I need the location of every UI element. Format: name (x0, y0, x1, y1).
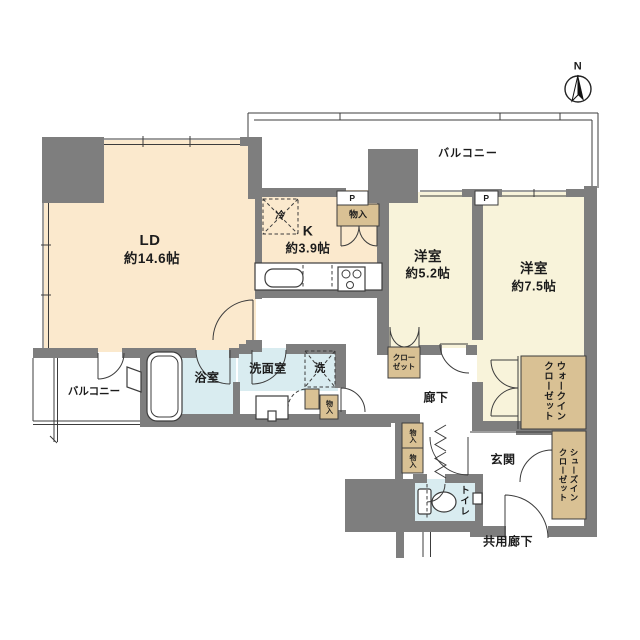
common-hallway-label: 共用廊下 (483, 535, 533, 550)
toilet-label: トイレ (457, 485, 469, 517)
walk-in-closet-label: ウォークイン クローゼット (541, 361, 566, 421)
entrance-storage-bifold-doors (435, 425, 446, 478)
paper-holder (473, 493, 482, 504)
north-label: N (574, 60, 582, 73)
bath-label: 浴室 (194, 371, 219, 386)
pipe-space-1-label: P (349, 193, 355, 203)
kitchen-name-label: K (303, 222, 314, 239)
bathtub (147, 352, 182, 421)
closet-52-label: クロー ゼット (393, 353, 416, 371)
washroom-label: 洗面室 (249, 362, 287, 377)
washer-label: 洗 (314, 362, 326, 375)
entrance-door (505, 495, 548, 538)
vanity-sink (256, 396, 288, 421)
hall-storage-label: 物入 (324, 400, 333, 414)
pipe-space-2-label: P (483, 193, 489, 203)
balcony-top-label: バルコニー (438, 147, 498, 160)
entrance-storage-a-label: 物入 (408, 429, 417, 443)
bedroom-52-name-label: 洋室 (414, 249, 442, 265)
floor-plan-drawing (0, 0, 640, 640)
ld-balcony-door (98, 353, 124, 379)
kitchen-storage-label: 物入 (349, 210, 367, 221)
kitchen-counter (255, 263, 382, 291)
hall-entrance-door (430, 437, 468, 475)
hallway-label: 廊下 (423, 391, 448, 406)
kitchen-size-label: 約3.9帖 (286, 241, 331, 256)
fridge-label: 冷 (275, 210, 286, 222)
entrance-label: 玄関 (490, 453, 515, 468)
north-compass (565, 75, 591, 102)
balcony-left-label: バルコニー (68, 386, 120, 399)
hall-storage-small-box (305, 389, 319, 409)
balcony-door-leaf (127, 367, 141, 392)
ld-name-label: LD (140, 232, 161, 250)
shoes-in-closet-label: シューズイン クローゼット (557, 448, 579, 502)
floor-plan: LD 約14.6帖 K 約3.9帖 洋室 約5.2帖 洋室 約7.5帖 バルコニ… (0, 0, 640, 640)
washroom-hall-door (341, 388, 365, 412)
hall-storage-door (288, 389, 307, 408)
shoes-in-closet-door (520, 450, 552, 482)
bedroom-52-size-label: 約5.2帖 (406, 266, 451, 281)
bedroom-75-name-label: 洋室 (520, 261, 548, 277)
bedroom-75-floor-leg (477, 355, 523, 429)
entrance-storage-b-label: 物入 (408, 454, 417, 468)
bedroom-52-door (440, 344, 469, 373)
bedroom-75-size-label: 約7.5帖 (512, 279, 557, 294)
ld-size-label: 約14.6帖 (124, 251, 180, 267)
